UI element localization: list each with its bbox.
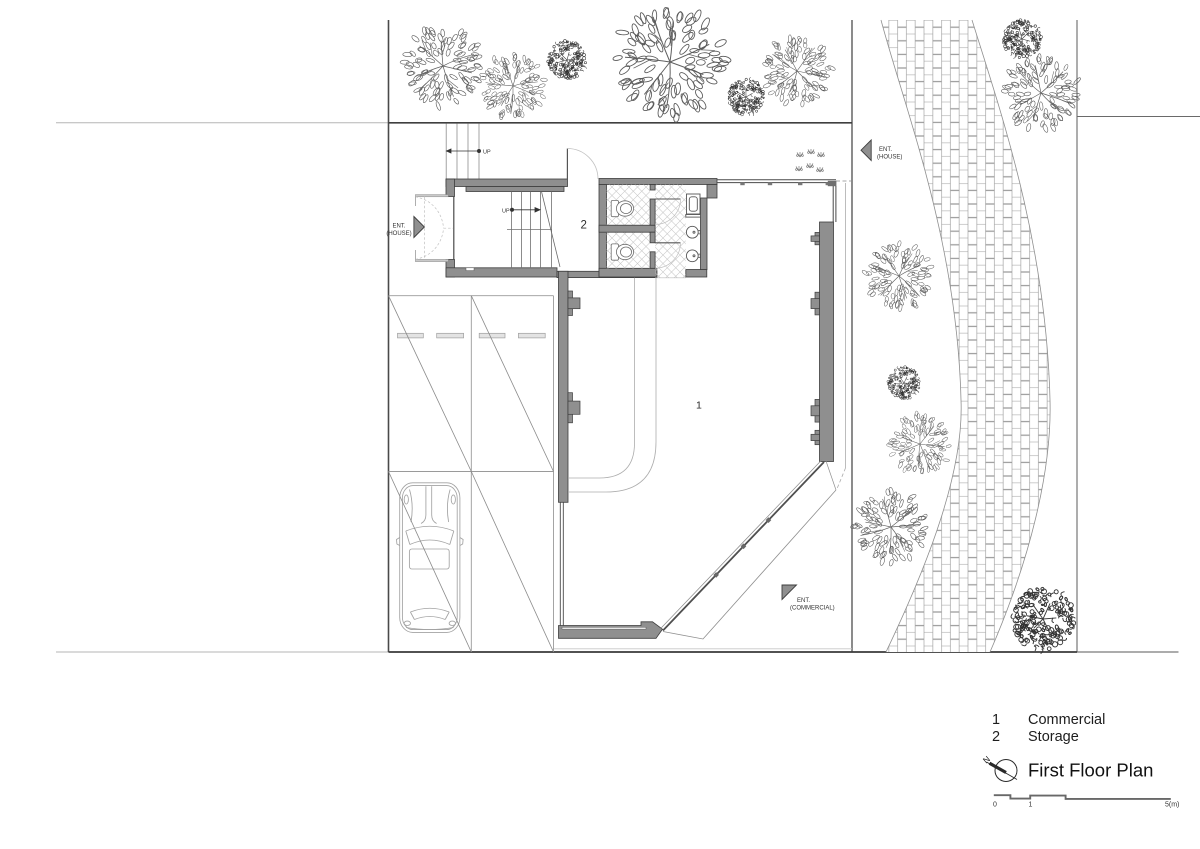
svg-text:2: 2 xyxy=(581,220,587,232)
svg-text:1: 1 xyxy=(1029,802,1033,809)
svg-text:Storage: Storage xyxy=(1028,729,1079,745)
svg-text:1: 1 xyxy=(696,400,702,412)
svg-text:(HOUSE): (HOUSE) xyxy=(877,154,902,160)
svg-text:ENT.: ENT. xyxy=(392,224,405,230)
svg-text:1: 1 xyxy=(992,712,1000,728)
svg-text:5(m): 5(m) xyxy=(1165,802,1179,809)
svg-text:(COMMERCIAL): (COMMERCIAL) xyxy=(790,606,835,612)
svg-text:ENT.: ENT. xyxy=(879,147,892,153)
svg-text:(HOUSE): (HOUSE) xyxy=(386,231,411,237)
svg-text:UP: UP xyxy=(502,208,510,214)
svg-text:UP: UP xyxy=(483,150,491,156)
svg-text:0: 0 xyxy=(993,802,997,809)
svg-text:Commercial: Commercial xyxy=(1028,712,1105,728)
svg-text:2: 2 xyxy=(992,729,1000,745)
svg-text:First Floor Plan: First Floor Plan xyxy=(1028,760,1153,781)
svg-text:ENT.: ENT. xyxy=(797,598,810,604)
